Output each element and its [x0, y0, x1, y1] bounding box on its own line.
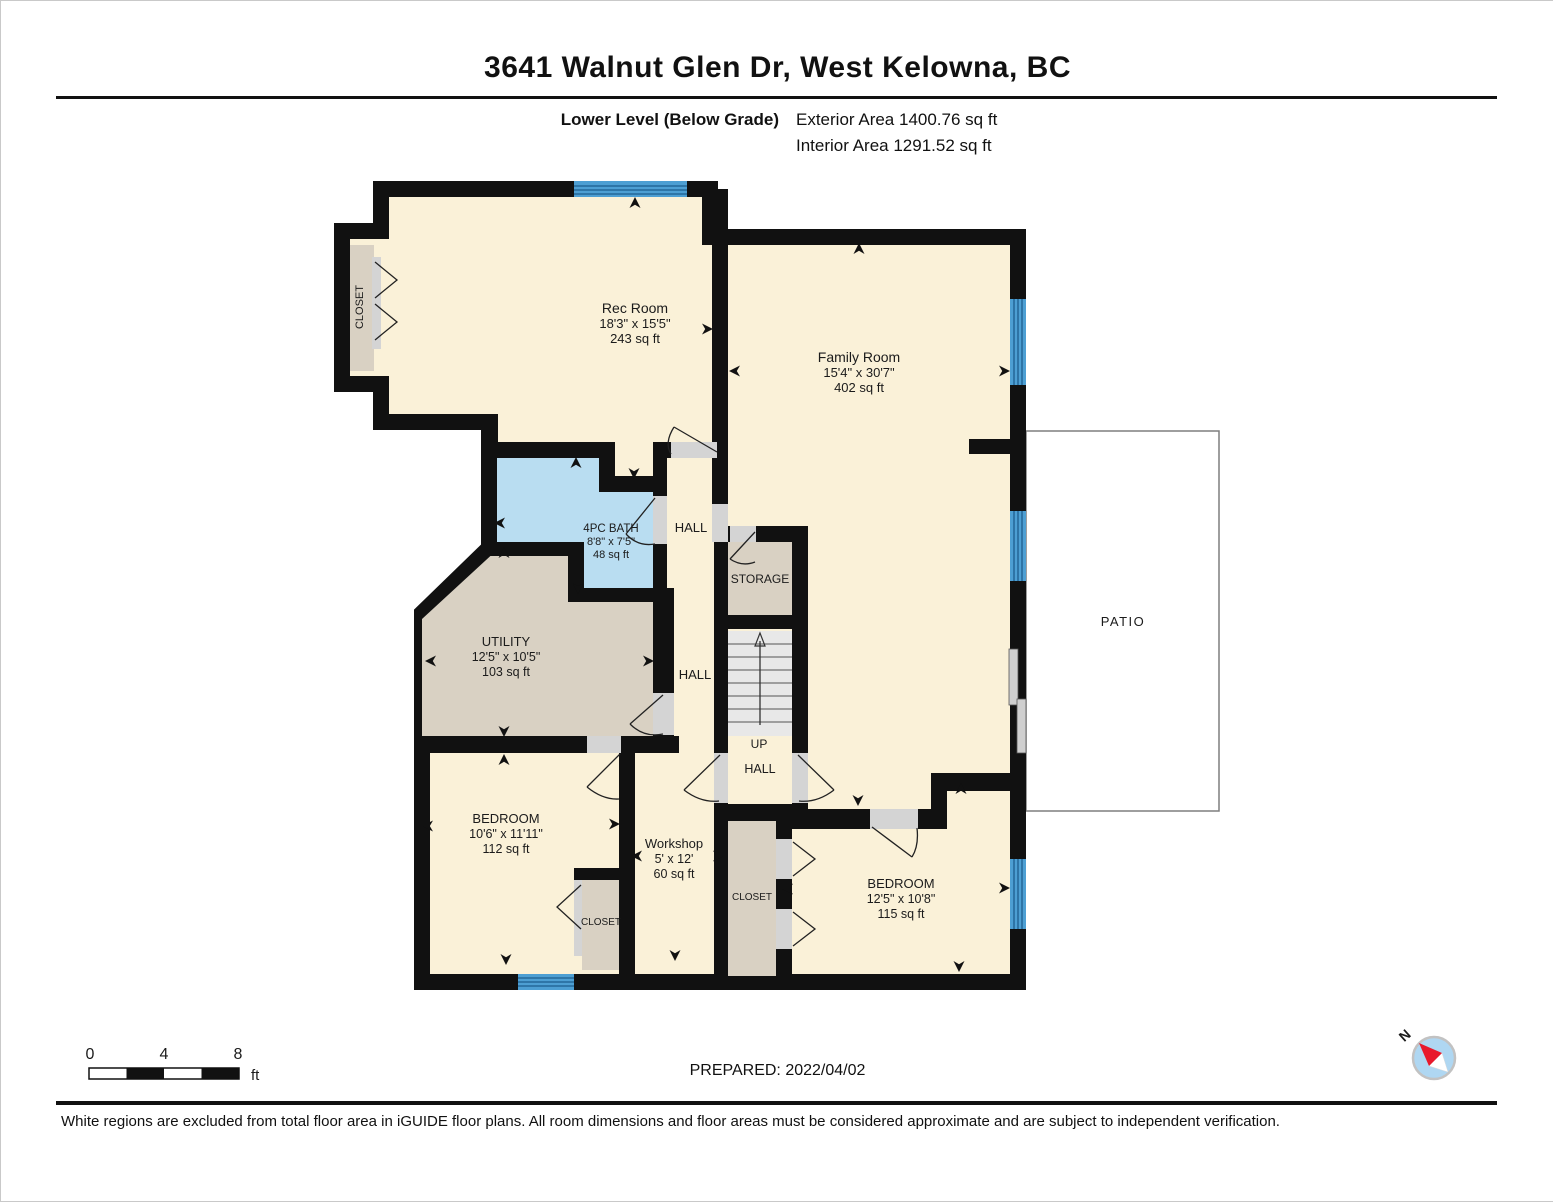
svg-text:10'6" x 11'11": 10'6" x 11'11": [469, 827, 543, 841]
svg-text:Rec Room: Rec Room: [602, 300, 668, 316]
svg-text:BEDROOM: BEDROOM: [867, 876, 934, 891]
disclaimer-text: White regions are excluded from total fl…: [61, 1113, 1501, 1130]
svg-text:4PC BATH: 4PC BATH: [583, 523, 638, 535]
svg-text:8'8" x 7'5": 8'8" x 7'5": [587, 536, 635, 548]
compass-n-label: N: [1396, 1026, 1414, 1045]
stair-hall-label: HALL: [744, 762, 775, 776]
svg-text:BEDROOM: BEDROOM: [472, 811, 539, 826]
patio-area: PATIO: [1026, 431, 1219, 811]
svg-text:112 sq ft: 112 sq ft: [482, 842, 530, 856]
svg-text:Family Room: Family Room: [818, 349, 900, 365]
svg-text:8: 8: [234, 1046, 243, 1063]
svg-text:12'5" x 10'8": 12'5" x 10'8": [867, 892, 936, 906]
up-label: UP: [751, 737, 768, 751]
closet-left-label: CLOSET: [581, 917, 621, 928]
svg-text:402 sq ft: 402 sq ft: [834, 380, 884, 395]
floorplan-drawing: PATIO: [1, 1, 1553, 1201]
svg-text:Workshop: Workshop: [645, 836, 703, 851]
prepared-date: PREPARED: 2022/04/02: [1, 1062, 1553, 1080]
svg-text:60 sq ft: 60 sq ft: [654, 867, 696, 881]
svg-text:243 sq ft: 243 sq ft: [610, 331, 660, 346]
svg-text:0: 0: [86, 1046, 95, 1063]
patio-label: PATIO: [1101, 614, 1146, 629]
closet-right-label: CLOSET: [732, 892, 772, 903]
storage-label: STORAGE: [731, 572, 789, 586]
floorplan-page: 3641 Walnut Glen Dr, West Kelowna, BC Lo…: [0, 0, 1553, 1202]
svg-text:48 sq ft: 48 sq ft: [593, 549, 629, 561]
svg-text:103 sq ft: 103 sq ft: [482, 665, 530, 679]
svg-text:12'5" x 10'5": 12'5" x 10'5": [472, 650, 541, 664]
hall-upper-label: HALL: [675, 520, 708, 535]
svg-text:4: 4: [160, 1046, 169, 1063]
svg-text:5' x 12': 5' x 12': [655, 852, 694, 866]
svg-text:UTILITY: UTILITY: [482, 634, 531, 649]
svg-text:15'4" x 30'7": 15'4" x 30'7": [823, 365, 895, 380]
hall-mid-label: HALL: [679, 667, 712, 682]
footer-divider: [56, 1101, 1497, 1105]
svg-text:18'3" x 15'5": 18'3" x 15'5": [599, 316, 671, 331]
svg-text:115 sq ft: 115 sq ft: [877, 907, 925, 921]
rec-closet-label: CLOSET: [354, 285, 366, 329]
